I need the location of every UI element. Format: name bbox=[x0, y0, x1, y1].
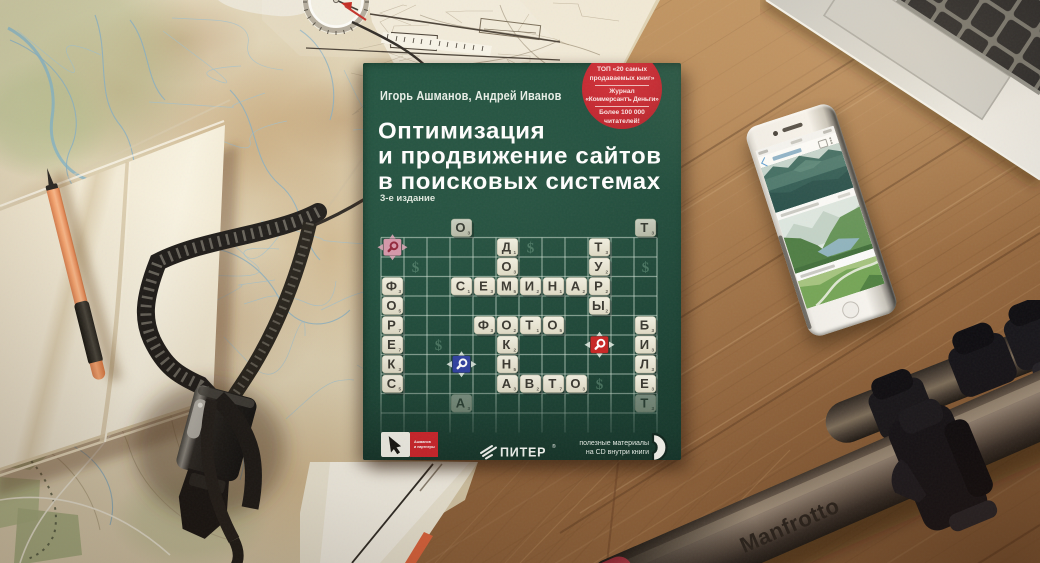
svg-text:3: 3 bbox=[491, 289, 494, 294]
svg-text:5: 5 bbox=[514, 289, 517, 294]
svg-text:2: 2 bbox=[537, 387, 540, 392]
svg-text:$: $ bbox=[642, 260, 650, 276]
svg-text:Ф: Ф bbox=[386, 279, 397, 294]
svg-text:1: 1 bbox=[514, 250, 517, 255]
svg-text:О: О bbox=[547, 318, 557, 333]
svg-text:Т: Т bbox=[525, 318, 533, 333]
svg-text:Н: Н bbox=[548, 279, 557, 294]
svg-text:2: 2 bbox=[606, 289, 609, 294]
svg-text:5: 5 bbox=[514, 367, 517, 372]
svg-text:$: $ bbox=[527, 241, 535, 257]
svg-text:3: 3 bbox=[468, 406, 471, 411]
svg-text:5: 5 bbox=[399, 387, 402, 392]
svg-text:Т: Т bbox=[548, 376, 556, 391]
svg-text:2: 2 bbox=[583, 289, 586, 294]
svg-text:Т: Т bbox=[640, 220, 648, 235]
svg-text:2: 2 bbox=[537, 289, 540, 294]
svg-text:А: А bbox=[456, 396, 466, 411]
svg-text:и партнеры: и партнеры bbox=[414, 445, 435, 449]
svg-text:3: 3 bbox=[491, 328, 494, 333]
svg-text:О: О bbox=[570, 376, 580, 391]
svg-text:О: О bbox=[455, 220, 465, 235]
svg-text:3: 3 bbox=[514, 270, 517, 275]
svg-text:У: У bbox=[594, 259, 603, 274]
svg-text:С: С bbox=[456, 279, 466, 294]
svg-text:М: М bbox=[501, 279, 512, 294]
svg-text:1: 1 bbox=[537, 328, 540, 333]
svg-text:3: 3 bbox=[399, 289, 402, 294]
svg-text:О: О bbox=[501, 259, 511, 274]
svg-text:Д: Д bbox=[502, 240, 512, 255]
svg-text:Н: Н bbox=[502, 357, 511, 372]
svg-text:2: 2 bbox=[514, 328, 517, 333]
svg-text:3: 3 bbox=[514, 387, 517, 392]
svg-text:7: 7 bbox=[560, 387, 563, 392]
svg-text:О: О bbox=[386, 298, 396, 313]
svg-text:$: $ bbox=[412, 260, 420, 276]
svg-text:2: 2 bbox=[514, 348, 517, 353]
svg-text:К: К bbox=[387, 357, 395, 372]
svg-text:О: О bbox=[501, 318, 511, 333]
svg-text:7: 7 bbox=[399, 328, 402, 333]
svg-text:В: В bbox=[525, 376, 534, 391]
svg-text:Ф: Ф bbox=[478, 318, 489, 333]
svg-text:3: 3 bbox=[606, 250, 609, 255]
svg-text:Т: Т bbox=[594, 240, 602, 255]
svg-text:5: 5 bbox=[560, 328, 563, 333]
svg-text:И: И bbox=[525, 279, 534, 294]
svg-text:1: 1 bbox=[560, 289, 563, 294]
svg-text:К: К bbox=[502, 337, 510, 352]
svg-text:3: 3 bbox=[652, 231, 655, 236]
svg-text:$: $ bbox=[435, 338, 443, 354]
svg-text:Е: Е bbox=[479, 279, 488, 294]
svg-text:2: 2 bbox=[606, 270, 609, 275]
svg-text:Р: Р bbox=[387, 318, 396, 333]
svg-text:Ашманов: Ашманов bbox=[414, 440, 432, 444]
svg-text:С: С bbox=[387, 376, 397, 391]
svg-text:А: А bbox=[502, 376, 512, 391]
svg-text:Е: Е bbox=[387, 337, 396, 352]
svg-text:3: 3 bbox=[399, 367, 402, 372]
svg-text:Р: Р bbox=[594, 279, 603, 294]
svg-text:7: 7 bbox=[399, 348, 402, 353]
svg-text:А: А bbox=[571, 279, 581, 294]
svg-text:3: 3 bbox=[468, 231, 471, 236]
svg-text:1: 1 bbox=[468, 289, 471, 294]
svg-text:5: 5 bbox=[399, 309, 402, 314]
svg-text:ПИТЕР: ПИТЕР bbox=[500, 446, 546, 460]
svg-text:®: ® bbox=[552, 443, 556, 450]
